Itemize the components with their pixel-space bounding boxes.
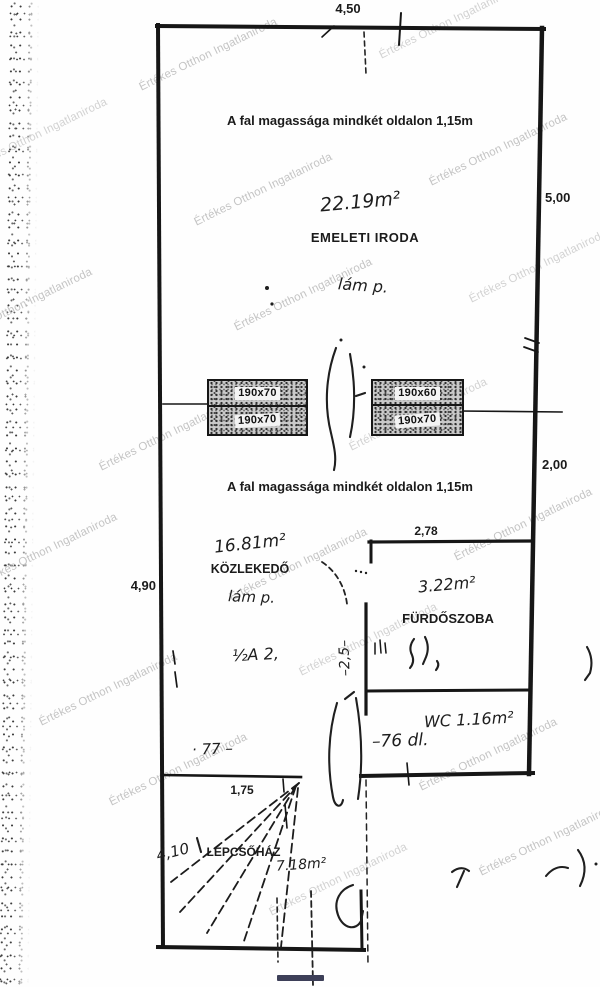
room-label-furdoszoba: FÜRDŐSZOBA [398,611,498,626]
handwriting-vertical-dim: –2,5– [335,613,354,704]
dimension-right-upper: 5,00 [545,190,570,205]
window-size-label: 190x70 [395,412,440,428]
handwriting-stair-dim: · 77 – [192,739,234,758]
room-label-lepcsohaz: LÉPCSŐHÁZ [196,845,291,859]
dimension-top-width: 4,50 [318,1,378,16]
dashed-lines [277,32,368,985]
wc-name: WC [424,711,452,731]
window-box: 190x70 [207,405,308,436]
handwriting-wc-note: –76 dl. [372,730,429,752]
dimension-bathroom-width: 2,78 [405,524,447,538]
dimension-right-lower: 2,00 [542,457,567,472]
window-size-label: 190x70 [235,387,280,400]
window-box: 190x60 [371,379,464,407]
room-label-kozlekedo: KÖZLEKEDŐ [200,562,300,576]
window-box: 190x70 [207,379,308,408]
dimension-stair-width: 1,75 [222,783,262,797]
wall-height-note: A fal magassága mindkét oldalon 1,15m [205,113,495,128]
wall-height-note: A fal magassága mindkét oldalon 1,15m [205,479,495,494]
handwriting-lamp: lám p. [228,587,276,607]
window-size-label: 190x70 [235,413,280,428]
scale-bar [277,975,324,981]
dimension-left: 4,90 [118,578,156,593]
handwriting-lamp: lám p. [337,274,388,296]
window-size-label: 190x60 [395,387,440,400]
handwriting-corridor-note: ½A 2, [232,644,280,665]
floorplan-scan: Értékes Otthon Ingatlaniroda Értékes Ott… [0,0,600,987]
room-label-emeleti-iroda: EMELETI IRODA [300,230,430,245]
area-wc: 1.16m² [456,708,515,730]
window-box: 190x70 [371,404,464,436]
